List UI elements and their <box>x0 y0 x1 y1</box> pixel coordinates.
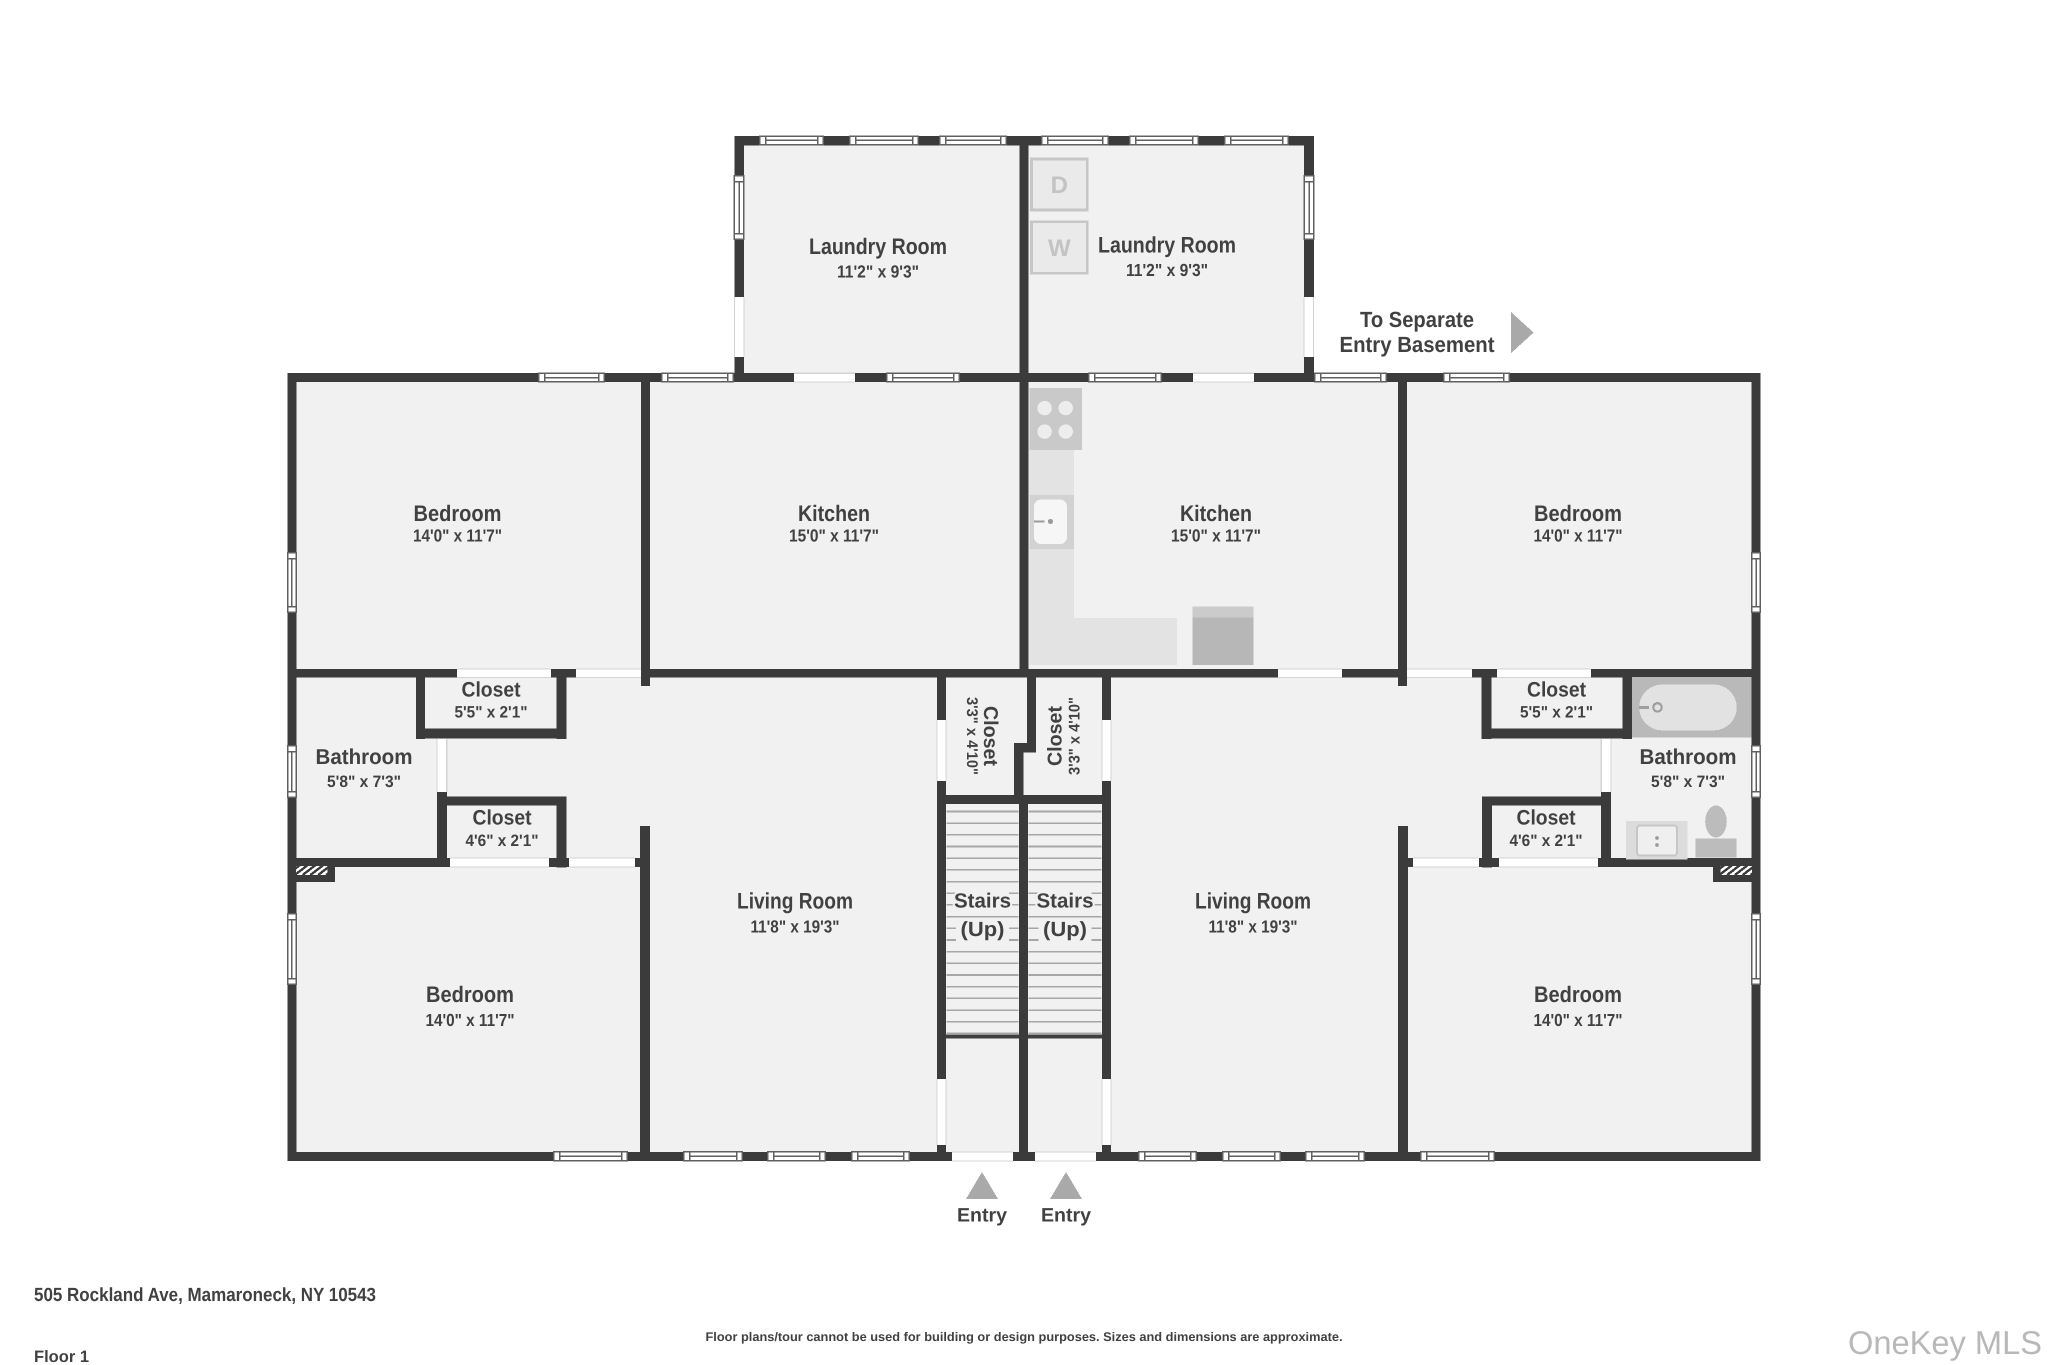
svg-text:Entry: Entry <box>957 1205 1007 1227</box>
svg-text:Bathroom: Bathroom <box>316 745 413 769</box>
svg-text:D: D <box>1051 172 1068 199</box>
svg-text:Closet: Closet <box>1045 706 1067 766</box>
svg-text:Closet: Closet <box>979 706 1001 766</box>
svg-text:Stairs: Stairs <box>1037 890 1094 913</box>
svg-text:To Separate: To Separate <box>1360 307 1474 332</box>
svg-text:Kitchen: Kitchen <box>798 501 870 526</box>
svg-text:Laundry Room: Laundry Room <box>1098 233 1236 258</box>
svg-text:5'8" x 7'3": 5'8" x 7'3" <box>327 773 401 791</box>
svg-text:15'0" x 11'7": 15'0" x 11'7" <box>1171 526 1261 546</box>
svg-text:Stairs: Stairs <box>954 890 1011 913</box>
svg-text:W: W <box>1048 235 1071 262</box>
svg-text:Floor plans/tour cannot be use: Floor plans/tour cannot be used for buil… <box>706 1330 1343 1344</box>
svg-text:3'3" x 4'10": 3'3" x 4'10" <box>1067 697 1084 775</box>
svg-text:14'0" x 11'7": 14'0" x 11'7" <box>1534 526 1623 546</box>
svg-text:Living Room: Living Room <box>1195 889 1311 914</box>
svg-text:14'0" x 11'7": 14'0" x 11'7" <box>1534 1010 1623 1030</box>
svg-text:Closet: Closet <box>1527 679 1586 702</box>
svg-text:Entry: Entry <box>1041 1205 1091 1227</box>
svg-text:Closet: Closet <box>1517 807 1576 830</box>
svg-text:Kitchen: Kitchen <box>1180 501 1252 526</box>
svg-text:505 Rockland Ave, Mamaroneck,: 505 Rockland Ave, Mamaroneck, NY 10543 <box>34 1285 376 1306</box>
svg-text:5'8" x 7'3": 5'8" x 7'3" <box>1651 773 1725 791</box>
svg-text:4'6" x 2'1": 4'6" x 2'1" <box>1510 832 1583 850</box>
svg-text:Bathroom: Bathroom <box>1640 745 1737 769</box>
svg-text:Closet: Closet <box>462 679 521 702</box>
svg-text:Bedroom: Bedroom <box>1534 982 1622 1007</box>
svg-text:14'0" x 11'7": 14'0" x 11'7" <box>413 526 502 546</box>
svg-text:Bedroom: Bedroom <box>1534 501 1622 526</box>
svg-text:Bedroom: Bedroom <box>414 501 502 526</box>
svg-text:5'5" x 2'1": 5'5" x 2'1" <box>455 704 528 722</box>
svg-text:3'3" x 4'10": 3'3" x 4'10" <box>963 697 980 775</box>
svg-text:(Up): (Up) <box>961 918 1005 941</box>
svg-text:OneKey MLS: OneKey MLS <box>1848 1324 2042 1361</box>
svg-text:11'8" x 19'3": 11'8" x 19'3" <box>751 917 840 937</box>
svg-text:Laundry Room: Laundry Room <box>809 234 947 259</box>
svg-text:Floor 1: Floor 1 <box>34 1348 89 1365</box>
svg-text:4'6" x 2'1": 4'6" x 2'1" <box>466 832 539 850</box>
svg-text:Bedroom: Bedroom <box>426 982 514 1007</box>
svg-text:11'2" x 9'3": 11'2" x 9'3" <box>1126 260 1208 280</box>
svg-text:14'0" x 11'7": 14'0" x 11'7" <box>426 1010 515 1030</box>
svg-text:(Up): (Up) <box>1043 918 1087 941</box>
svg-text:11'8" x 19'3": 11'8" x 19'3" <box>1209 917 1298 937</box>
svg-text:11'2" x 9'3": 11'2" x 9'3" <box>837 262 919 282</box>
svg-text:Living Room: Living Room <box>737 889 853 914</box>
svg-text:Closet: Closet <box>473 807 532 830</box>
svg-text:15'0" x 11'7": 15'0" x 11'7" <box>789 526 879 546</box>
svg-text:5'5" x 2'1": 5'5" x 2'1" <box>1520 704 1593 722</box>
svg-text:Entry Basement: Entry Basement <box>1340 332 1496 357</box>
